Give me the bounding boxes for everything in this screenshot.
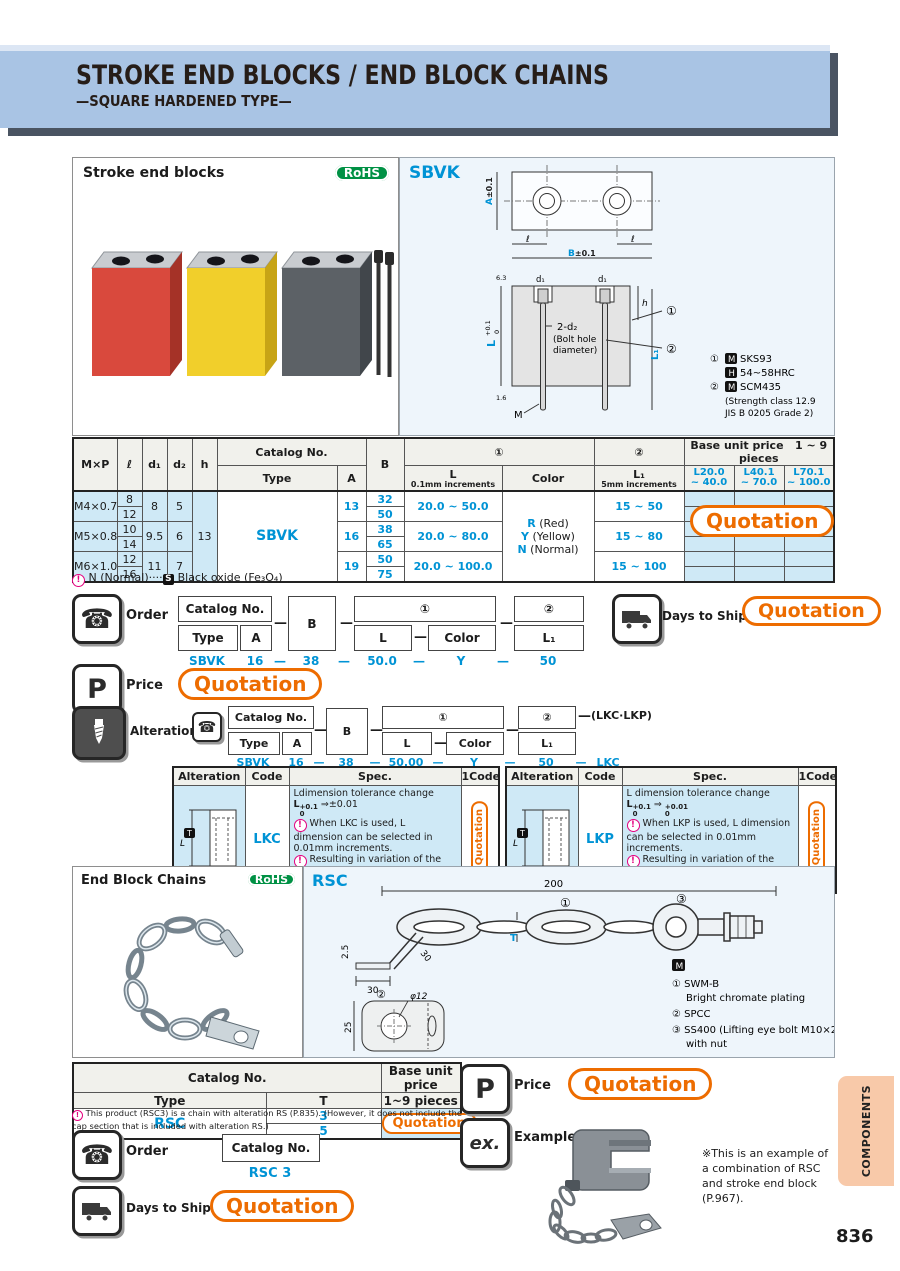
svg-text:diameter): diameter) — [553, 346, 597, 356]
col-header: ℓ — [117, 438, 142, 491]
color-box: Color — [428, 625, 496, 651]
cell: 13 — [192, 491, 217, 582]
example-icon: ex. — [470, 1133, 501, 1154]
svg-text:②: ② — [710, 382, 719, 393]
a-box: A — [282, 732, 312, 755]
col-header: d₁ — [142, 438, 167, 491]
roughness-1: 6.3 — [496, 274, 506, 282]
price-icon: P — [475, 1074, 495, 1105]
l-box: L — [354, 625, 412, 651]
col-header: Code — [578, 767, 622, 786]
cell: 20.0 ~ 50.0 — [404, 491, 502, 522]
cell: 50 — [366, 507, 404, 522]
photo-box-label: End Block Chains — [81, 873, 206, 888]
caution-icon: ! — [627, 819, 640, 832]
svg-text:①: ① — [710, 354, 719, 365]
col-header: Color — [502, 466, 594, 492]
svg-text:0: 0 — [493, 330, 501, 334]
cell: 20.0 ~ 100.0 — [404, 552, 502, 583]
sbvk-technical-drawing: A±0.1 ℓ ℓ B±0.1 d₁ d₁ h L +0.1 0 — [400, 158, 834, 435]
cell: 50 — [366, 552, 404, 567]
price-cell — [684, 567, 734, 583]
material-note-5: JIS B 0205 Grade 2) — [724, 409, 813, 419]
dim-200: 200 — [544, 879, 563, 890]
price-cell — [734, 537, 784, 552]
quotation-badge-vertical: Quotation — [471, 801, 488, 873]
catalog-no-box: Catalog No. — [178, 596, 272, 622]
rohs-badge: RoHS — [248, 873, 295, 886]
days-to-ship-label: Days to Ship — [662, 609, 747, 623]
cell: 13 — [337, 491, 366, 522]
dim-L1: L₁ — [650, 349, 661, 360]
caution-icon: ! — [72, 574, 85, 587]
quotation-badge: Quotation — [742, 596, 881, 626]
dim-L: L — [485, 340, 498, 347]
stroke-end-blocks-photo-box: Stroke end blocks RoHS — [72, 157, 399, 436]
svg-text:A±0.1: A±0.1 — [485, 177, 495, 205]
page-subtitle: —SQUARE HARDENED TYPE— — [76, 92, 740, 110]
table-row: M6×1.0 12 11 7 19 50 20.0 ~ 100.0 15 ~ 1… — [73, 552, 834, 567]
ref-1: ① — [560, 896, 571, 910]
col-header: 1~9 pieces — [381, 1093, 461, 1109]
cell: 5 — [167, 491, 192, 522]
dim-ell-left: ℓ — [525, 235, 530, 245]
col-header: T — [266, 1093, 381, 1109]
example-type: SBVK — [178, 654, 236, 668]
end-block-chains-photo-box: End Block Chains RoHS — [72, 866, 303, 1058]
dim-d1-left: d₁ — [536, 275, 545, 285]
cell: 19 — [337, 552, 366, 583]
circle1-box: ① — [354, 596, 496, 622]
col-header: ② — [594, 438, 684, 466]
svg-text:H: H — [729, 369, 735, 379]
svg-text:T: T — [519, 829, 525, 838]
price-label: Price — [126, 678, 163, 693]
dim-ell-right: ℓ — [630, 235, 635, 245]
phone-icon: ☎ — [80, 1140, 114, 1171]
example-image — [497, 1122, 707, 1247]
order-phone-tile-small: ☎ — [192, 712, 222, 742]
order-tile: ☎ — [72, 594, 122, 644]
truck-icon — [81, 1199, 113, 1223]
rsc-example-code: RSC 3 — [222, 1166, 318, 1181]
svg-text:+0.1: +0.1 — [484, 320, 492, 336]
col-header: Catalog No. — [217, 438, 366, 466]
col-header: Catalog No. — [73, 1063, 381, 1093]
price-col-header: L70.1~ 100.0 — [784, 466, 834, 492]
order-label: Order — [126, 1144, 168, 1159]
material-note-2: 54~58HRC — [740, 368, 795, 379]
photo-box-label: Stroke end blocks — [83, 165, 224, 181]
material-note-1: SKS93 — [740, 354, 772, 365]
l1-box: L₁ — [518, 732, 576, 755]
cell-type: SBVK — [217, 491, 337, 582]
price-icon: P — [87, 674, 107, 705]
cell: 15 ~ 80 — [594, 522, 684, 552]
col-header: Type — [217, 466, 337, 492]
cell: 65 — [366, 537, 404, 552]
price-cell — [784, 552, 834, 567]
dim-t: T — [510, 933, 517, 944]
dim-phi12: φ12 — [410, 992, 428, 1002]
price-cell — [684, 552, 734, 567]
quotation-badge: Quotation — [568, 1068, 712, 1100]
price-cell — [784, 537, 834, 552]
bolt-hole-label: 2-d₂ — [557, 322, 577, 333]
page-title: STROKE END BLOCKS / END BLOCK CHAINS — [76, 60, 694, 91]
col-header: Spec. — [289, 767, 461, 786]
cell: 6 — [167, 522, 192, 552]
material-icon: M — [676, 962, 684, 972]
col-header: Code — [245, 767, 289, 786]
page-header: STROKE END BLOCKS / END BLOCK CHAINS —SQ… — [0, 45, 830, 128]
table-footnote: ! N (Normal)····S Black oxide (Fe₃O₄) — [72, 571, 283, 587]
ref-2: ② — [376, 988, 386, 1001]
alteration-code-builder: Catalog No. Type A — B — ① L — Color — ②… — [228, 706, 678, 770]
svg-text:③ SS400 (Lifting eye bolt M10×: ③ SS400 (Lifting eye bolt M10×20) — [672, 1025, 834, 1036]
price-tile: P — [460, 1064, 510, 1114]
svg-text:① SWM-B: ① SWM-B — [672, 979, 719, 990]
col-header: B — [366, 438, 404, 491]
cell: 38 — [366, 522, 404, 537]
cell-color-options: R (Red) Y (Yellow) N (Normal) — [502, 491, 594, 582]
col-header: M×P — [73, 438, 117, 491]
svg-text:M: M — [728, 383, 735, 393]
col-header: Alteration — [506, 767, 578, 786]
days-to-ship-label: Days to Ship — [126, 1201, 211, 1215]
side-tab-label: COMPONENTS — [860, 1085, 873, 1177]
material-note-4: (Strength class 12.9 — [725, 397, 816, 407]
cell: 12 — [117, 552, 142, 567]
phone-icon: ☎ — [80, 604, 114, 635]
cell: 16 — [337, 522, 366, 552]
type-box: Type — [178, 625, 238, 651]
material-note-3: SCM435 — [740, 382, 781, 393]
dim-h: h — [642, 299, 648, 309]
circle2-box: ② — [518, 706, 576, 729]
quotation-badge: Quotation — [178, 668, 322, 700]
col-header: L₁5mm increments — [594, 466, 684, 492]
page-number: 836 — [836, 1226, 874, 1247]
cell: 32 — [366, 491, 404, 507]
cell: 15 ~ 50 — [594, 491, 684, 522]
l1-box: L₁ — [514, 625, 584, 651]
b-box: B — [326, 708, 368, 755]
col-header: Base unit price — [381, 1063, 461, 1093]
alterations-tile — [72, 706, 126, 760]
col-header: h — [192, 438, 217, 491]
col-header: Type — [73, 1093, 266, 1109]
cell: 14 — [117, 537, 142, 552]
stroke-end-blocks-image — [74, 210, 395, 425]
order-tile: ☎ — [72, 1130, 122, 1180]
svg-text:T: T — [186, 829, 192, 838]
catalog-no-box: Catalog No. — [222, 1134, 320, 1162]
days-to-ship-tile — [72, 1186, 122, 1236]
rsc-technical-drawing: 200 ① ③ T 2.5 — [304, 867, 834, 1057]
cell: 9.5 — [142, 522, 167, 552]
cell: 75 — [366, 567, 404, 583]
days-to-ship-tile — [612, 594, 662, 644]
material-note: Bright chromate plating — [686, 993, 805, 1004]
rohs-badge: RoHS — [335, 165, 389, 181]
order-code-builder: Catalog No. Type A — B — ① L — Color — ②… — [178, 592, 608, 676]
ref-1: ① — [666, 304, 677, 318]
dim-25: 25 — [344, 1022, 354, 1033]
svg-text:② SPCC: ② SPCC — [672, 1009, 711, 1020]
roughness-2: 1.6 — [496, 394, 506, 402]
rsc-table-footnote: ! This product (RSC3) is a chain with al… — [72, 1108, 462, 1131]
circle2-box: ② — [514, 596, 584, 622]
lkc-diagram: T L — [176, 805, 242, 871]
color-box: Color — [446, 732, 504, 755]
truck-icon — [621, 607, 653, 631]
dim-a: A — [485, 198, 495, 205]
price-label: Price — [514, 1078, 551, 1093]
cell: 8 — [117, 491, 142, 507]
price-col-header: L20.0~ 40.0 — [684, 466, 734, 492]
cell: 20.0 ~ 80.0 — [404, 522, 502, 552]
svg-text:(Bolt hole: (Bolt hole — [553, 335, 597, 345]
dim-30a: 30 — [418, 949, 433, 964]
dim-2-5: 2.5 — [341, 945, 351, 959]
price-cell — [734, 552, 784, 567]
alteration-suffix: (LKC·LKP) — [591, 709, 652, 722]
col-header: d₂ — [167, 438, 192, 491]
caution-icon: ! — [294, 819, 307, 832]
circle1-box: ① — [382, 706, 504, 729]
svg-text:L: L — [180, 839, 185, 849]
col-header: Spec. — [622, 767, 798, 786]
components-side-tab: COMPONENTS — [838, 1076, 894, 1186]
svg-text:B±0.1: B±0.1 — [568, 249, 596, 259]
cell: 12 — [117, 507, 142, 522]
price-col-header: L40.1~ 70.0 — [734, 466, 784, 492]
catalog-no-box: Catalog No. — [228, 706, 314, 729]
a-box: A — [240, 625, 272, 651]
type-box: Type — [228, 732, 280, 755]
phone-icon: ☎ — [198, 718, 217, 736]
ref-2: ② — [666, 342, 677, 356]
cell: M4×0.7 — [73, 491, 117, 522]
surface-icon: S — [163, 574, 174, 585]
cell: 10 — [117, 522, 142, 537]
catalog-page: STROKE END BLOCKS / END BLOCK CHAINS —SQ… — [0, 0, 900, 1271]
lkp-diagram: T L — [509, 805, 575, 871]
cell: M5×0.8 — [73, 522, 117, 552]
col-header: A — [337, 466, 366, 492]
price-cell — [684, 537, 734, 552]
order-label: Order — [126, 608, 168, 623]
l-box: L — [382, 732, 432, 755]
col-header: 1Code — [798, 767, 836, 786]
material-note: with nut — [686, 1039, 727, 1050]
col-header: Alteration — [173, 767, 245, 786]
dim-m: M — [514, 410, 523, 421]
b-box: B — [288, 596, 336, 651]
rsc-diagram-box: RSC 200 ① ③ T — [303, 866, 835, 1058]
col-header: Base unit price 1 ~ 9 pieces — [684, 438, 834, 466]
drill-icon — [88, 718, 110, 748]
dim-d1-right: d₁ — [598, 275, 607, 285]
col-header: L0.1mm increments — [404, 466, 502, 492]
price-cell — [784, 567, 834, 583]
col-header: ① — [404, 438, 594, 466]
col-header: 1Code — [461, 767, 499, 786]
price-cell — [734, 567, 784, 583]
quotation-badge-vertical: Quotation — [808, 801, 825, 873]
example-note: ※This is an example of a combination of … — [702, 1146, 834, 1206]
caution-icon: ! — [72, 1110, 83, 1121]
chain-image — [73, 895, 300, 1053]
cell: 8 — [142, 491, 167, 522]
quotation-badge: Quotation — [690, 505, 834, 537]
sbvk-diagram-box: SBVK A±0.1 ℓ ℓ B±0.1 d₁ d₁ — [399, 157, 835, 436]
svg-text:M: M — [728, 355, 735, 365]
svg-text:L: L — [513, 839, 518, 849]
cell: 15 ~ 100 — [594, 552, 684, 583]
quotation-badge: Quotation — [210, 1190, 354, 1222]
